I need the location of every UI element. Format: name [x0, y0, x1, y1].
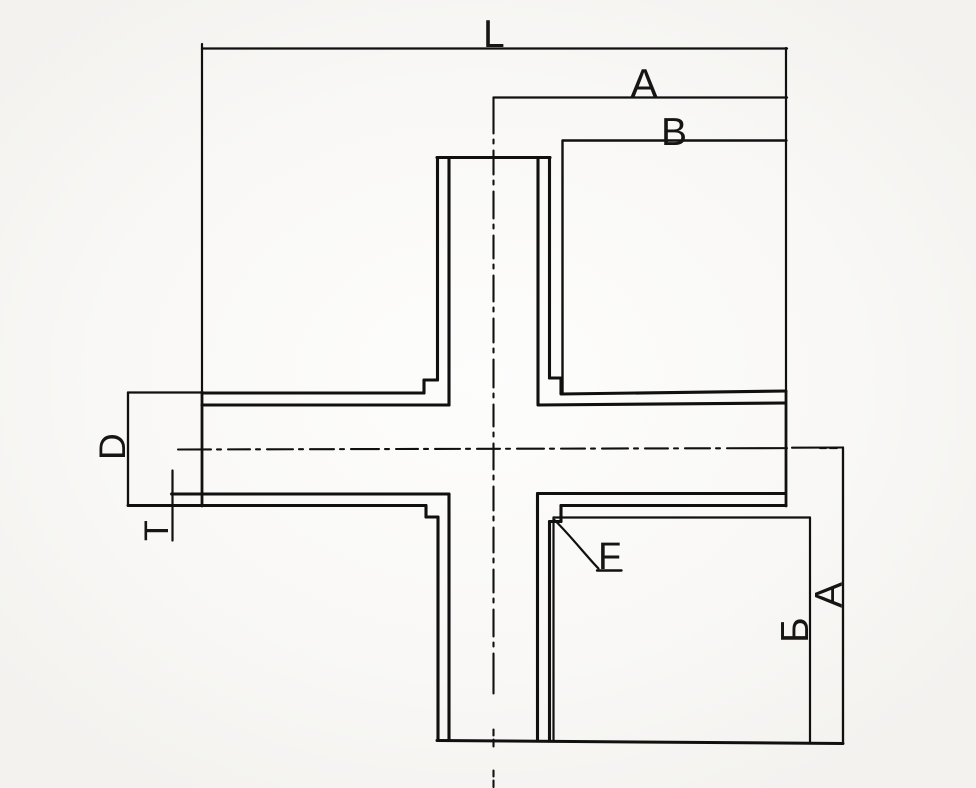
- svg-text:T: T: [138, 520, 176, 541]
- svg-text:Б: Б: [774, 617, 817, 643]
- svg-text:D: D: [92, 433, 133, 460]
- svg-text:B: B: [661, 111, 687, 154]
- svg-text:F: F: [598, 536, 621, 578]
- svg-text:L: L: [483, 13, 505, 56]
- svg-text:A: A: [808, 582, 851, 608]
- svg-text:A: A: [630, 60, 658, 107]
